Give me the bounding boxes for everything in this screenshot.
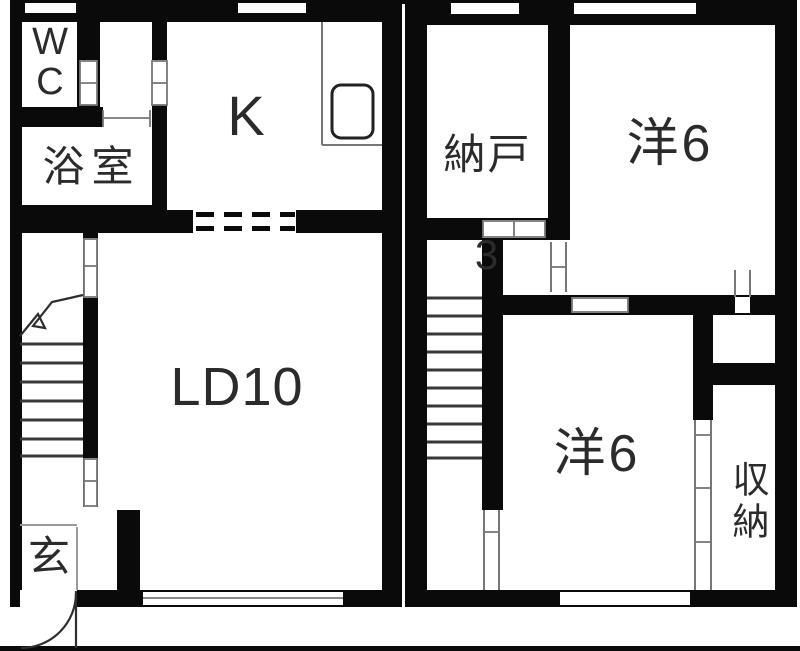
storage-room-name: 納戸 — [427, 130, 548, 180]
room-label-western-upper: 洋6 — [606, 116, 734, 172]
room-label-western-lower: 洋6 — [533, 426, 661, 482]
kitchen-sink-icon — [332, 85, 373, 138]
window-notch-western-upper — [573, 2, 697, 15]
room-label-entrance: 玄 — [26, 534, 72, 579]
room-label-bathroom: 浴室 — [24, 144, 152, 189]
sliding-door-hall-western-lower — [484, 510, 499, 590]
stairs-1f — [20, 295, 83, 456]
room-label-storage-room: 納戸 3 — [427, 80, 548, 330]
window-notch-wc — [24, 2, 77, 14]
storage-room-size: 3 — [427, 230, 548, 280]
stair-break-line — [20, 295, 83, 336]
room-label-closet: 収納 — [722, 450, 772, 554]
floorplan-canvas: WC 浴室 K LD10 玄 納戸 3 洋6 洋6 収納 — [0, 0, 800, 651]
window-notch-kitchen — [237, 2, 307, 14]
window-notch-storage — [450, 2, 520, 15]
window-western-lower — [560, 592, 690, 605]
room-label-living-dining: LD10 — [155, 358, 319, 416]
floorplan-drawing — [0, 0, 800, 651]
sliding-door-closet — [695, 420, 711, 590]
room-label-wc: WC — [29, 22, 71, 102]
room-label-kitchen: K — [214, 86, 278, 146]
door-western-upper — [551, 242, 566, 292]
